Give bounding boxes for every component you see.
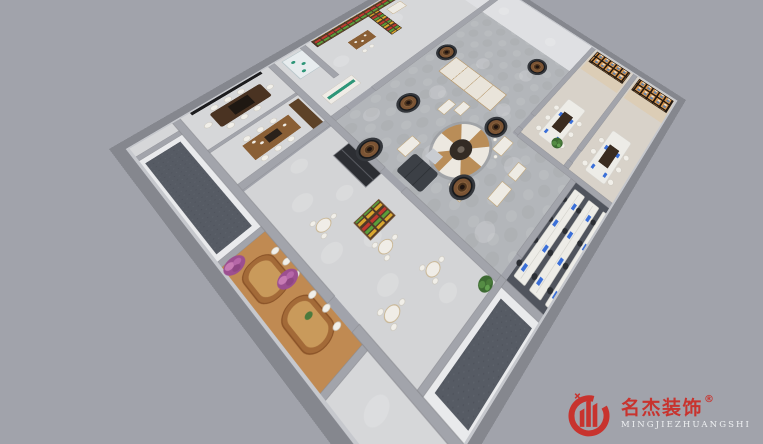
render-canvas: 名杰装饰® MINGJIEZHUANGSHI: [0, 0, 763, 444]
logo-brand-cn: 名杰装饰®: [621, 399, 751, 419]
logo-emblem-icon: [565, 390, 613, 438]
floorplan-svg: [109, 0, 686, 444]
brand-logo: 名杰装饰® MINGJIEZHUANGSHI: [565, 390, 751, 438]
logo-brand-en: MINGJIEZHUANGSHI: [621, 421, 751, 430]
registered-mark: ®: [704, 394, 716, 405]
logo-text: 名杰装饰® MINGJIEZHUANGSHI: [621, 399, 751, 430]
logo-star: [575, 394, 580, 399]
building-floorplan: [109, 0, 686, 444]
